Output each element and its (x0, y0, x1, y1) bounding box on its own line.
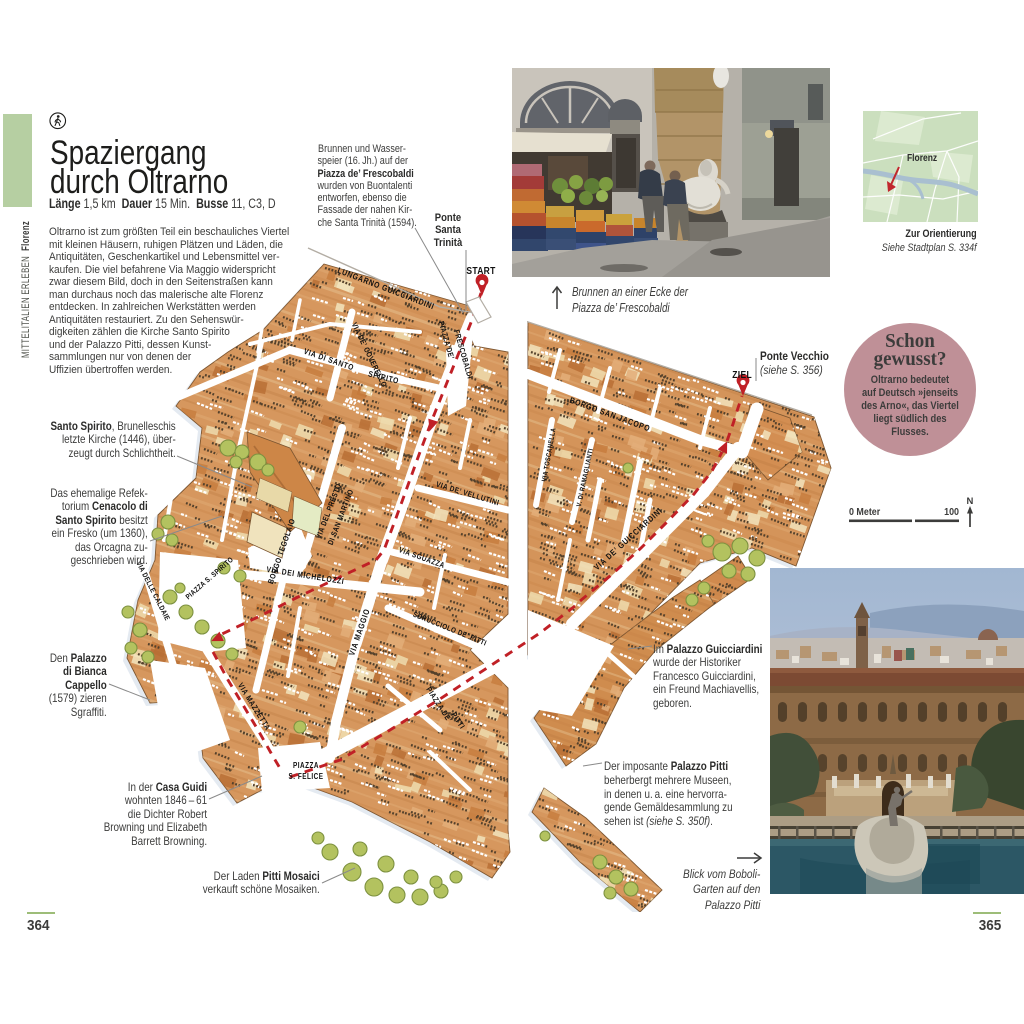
svg-text:ZIEL: ZIEL (732, 369, 752, 380)
svg-text:100: 100 (944, 506, 959, 518)
svg-text:START: START (466, 265, 495, 276)
svg-text:PIAZZA: PIAZZA (293, 761, 319, 770)
svg-text:0 Meter: 0 Meter (849, 506, 880, 518)
svg-text:S. FELICE: S. FELICE (289, 772, 324, 781)
svg-text:N: N (967, 496, 974, 507)
svg-text:Florenz: Florenz (907, 152, 938, 163)
